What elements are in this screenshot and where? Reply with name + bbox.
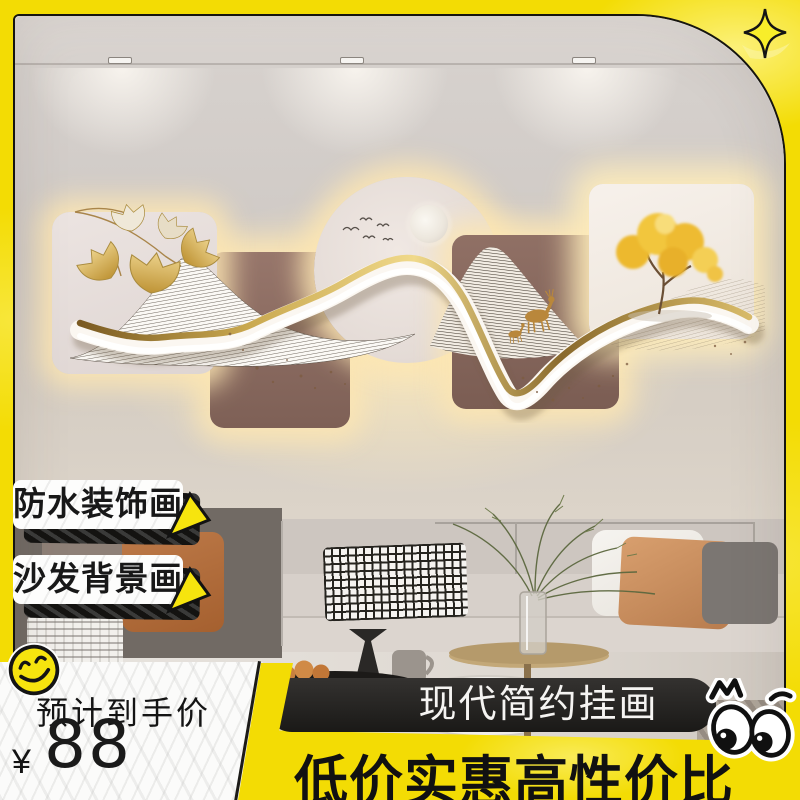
promo-image: 防水装饰画 沙发背景画 现代简约挂画 低价实惠高性价比 预计到手价 ¥ 88	[0, 0, 800, 800]
badge-waterproof: 防水装饰画	[13, 480, 183, 529]
sparkle-icon	[734, 5, 796, 67]
cursor-arrow-icon	[164, 565, 212, 615]
badge-sofa-background: 沙发背景画	[13, 555, 183, 604]
eyes-icon	[704, 678, 800, 764]
tagline-text: 低价实惠高性价比	[278, 737, 750, 800]
price-amount: 88	[44, 706, 132, 783]
cursor-arrow-icon	[164, 490, 212, 540]
banner-pill: 现代简约挂画	[265, 678, 716, 732]
price-currency: ¥	[12, 743, 31, 782]
smiley-icon	[1, 637, 67, 703]
